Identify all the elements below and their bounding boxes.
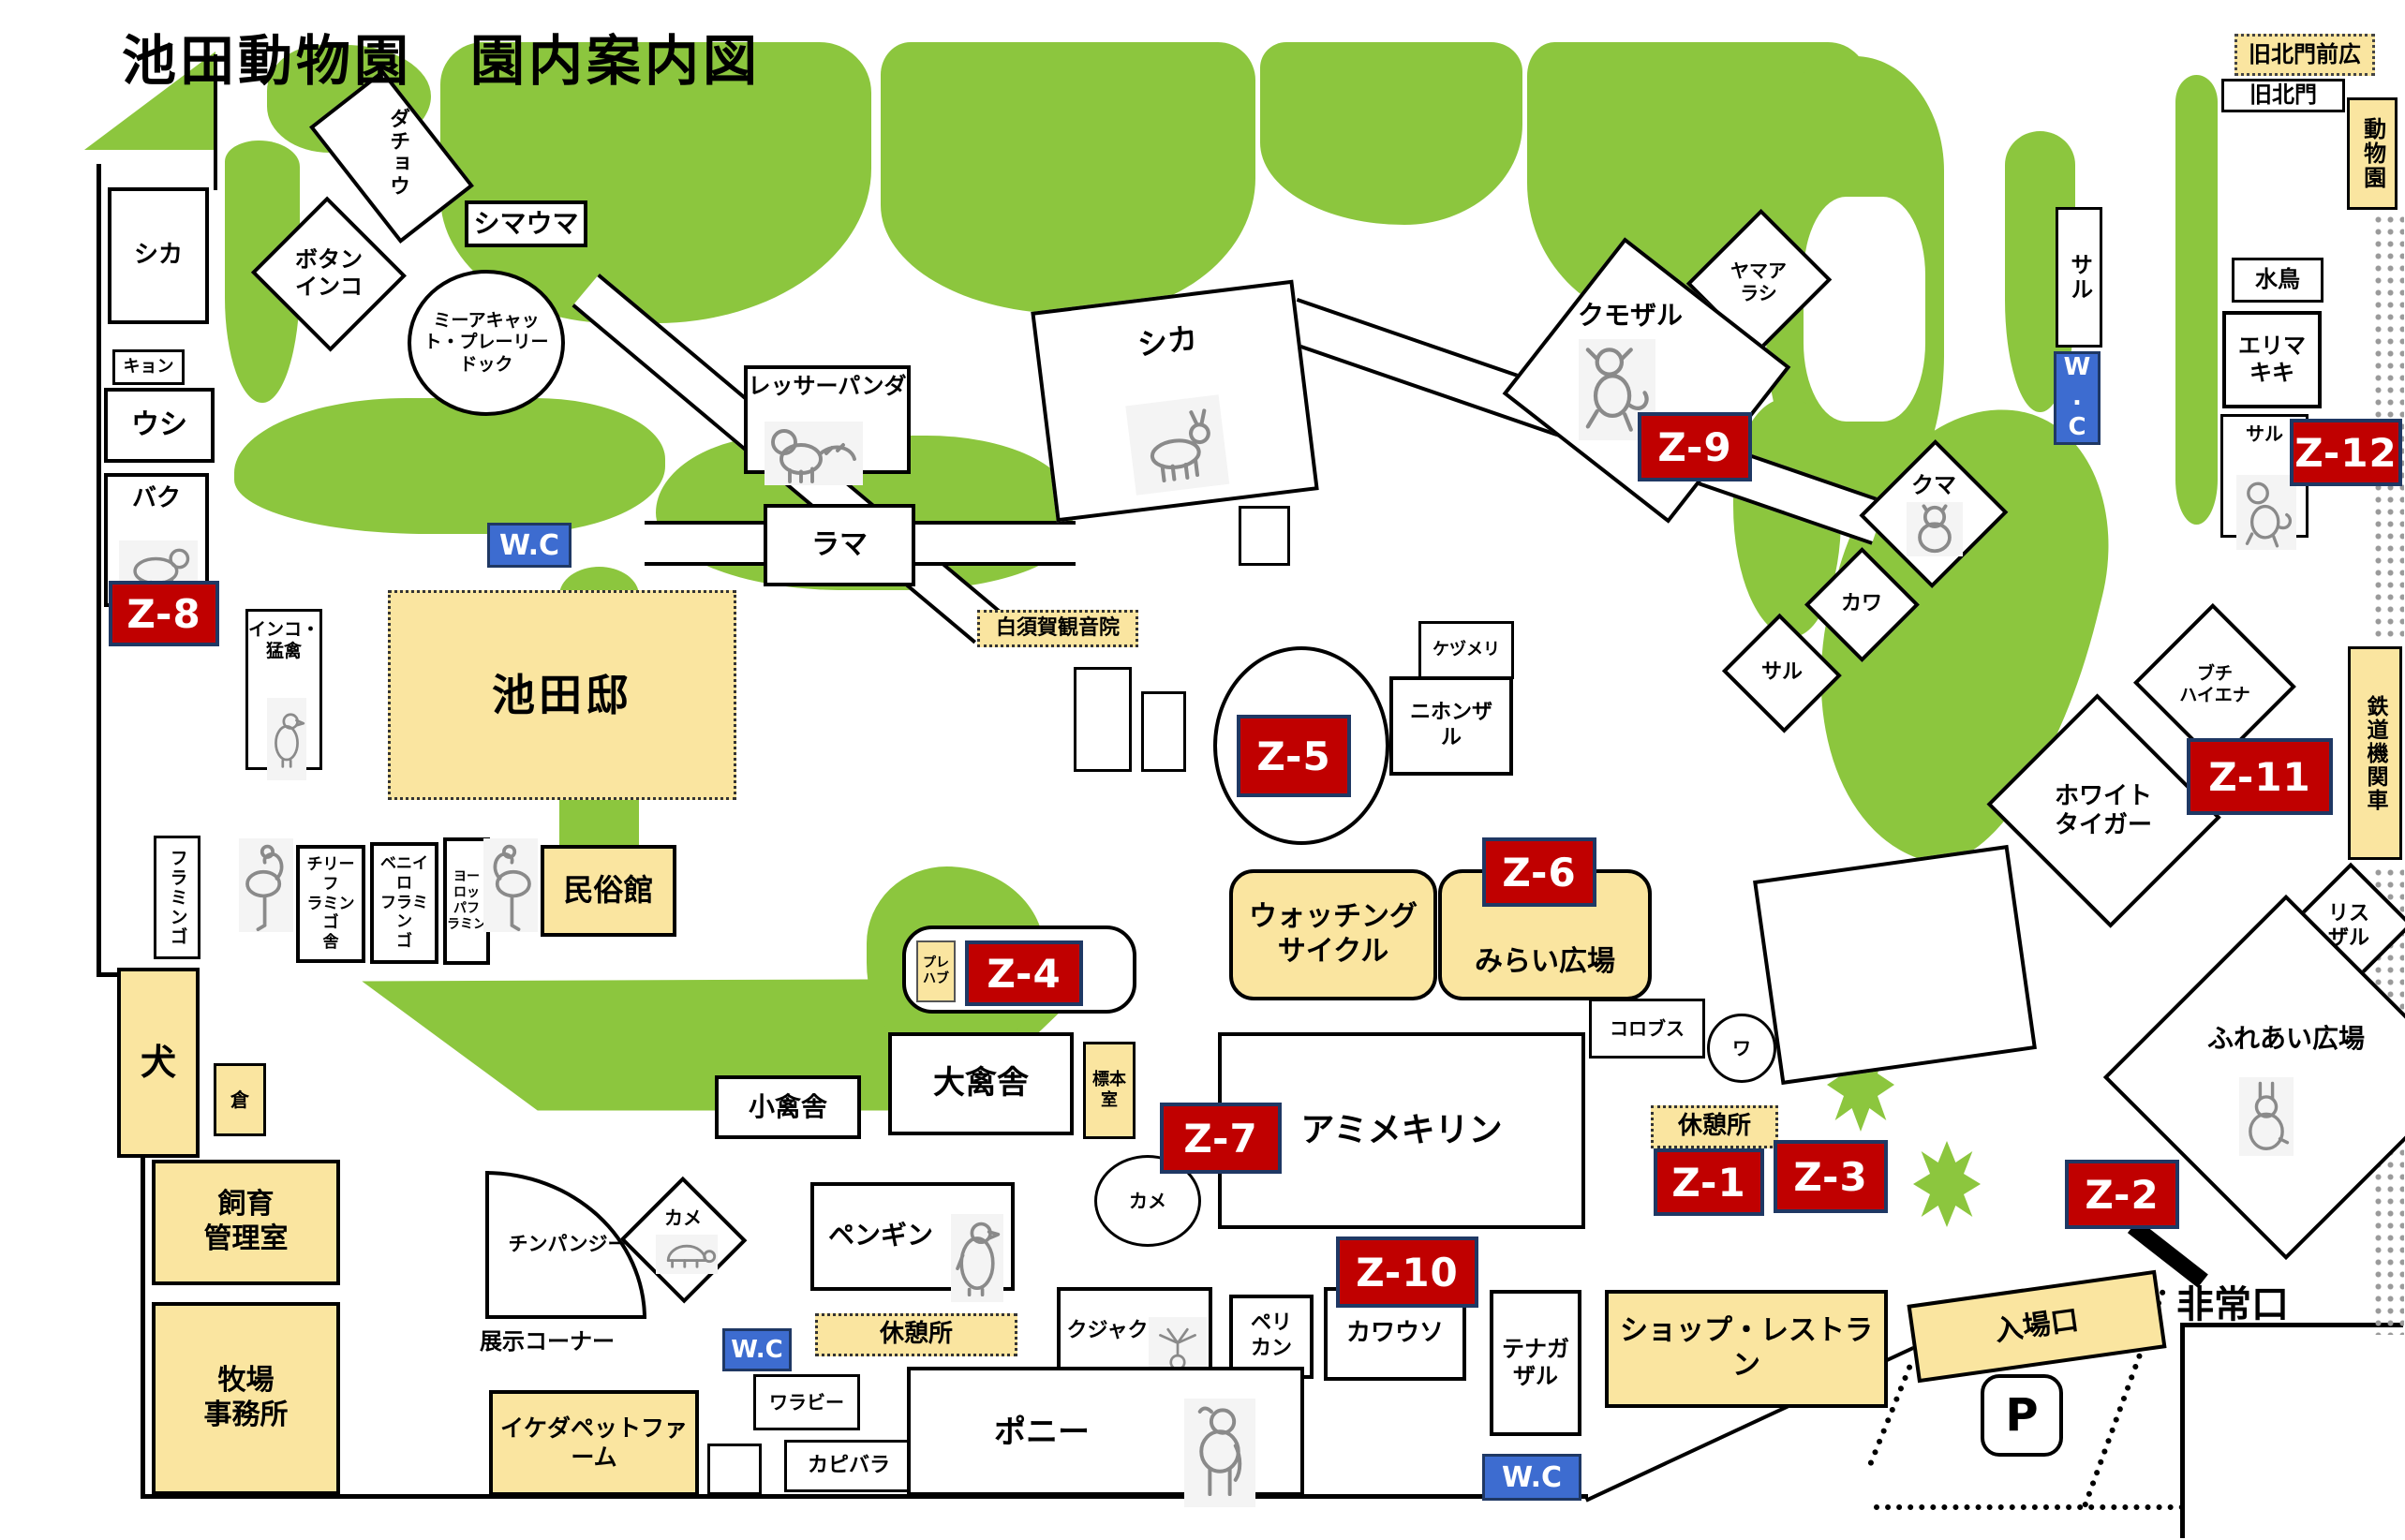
old-north-gate-plaza: 旧北門前広 bbox=[2234, 34, 2375, 76]
enclosure-saru-right: サル bbox=[2056, 207, 2102, 348]
enclosure-nihonzaru: ニホンザ ル bbox=[1389, 676, 1513, 776]
turtle-sketch bbox=[656, 1235, 718, 1274]
zone-marker-z9: Z-9 bbox=[1638, 412, 1752, 481]
wc-box: W.C bbox=[722, 1328, 792, 1371]
zone-marker-z2: Z-2 bbox=[2065, 1160, 2179, 1229]
zone-marker-z7: Z-7 bbox=[1160, 1103, 1282, 1174]
enclosure-kumozaru-label: クモザル bbox=[1551, 295, 1710, 333]
tree-icon bbox=[1913, 1141, 1981, 1227]
zoo-guide-map: 池田動物園 園内案内図 旧北門前広 旧北門 動物園 シカ ダチョウ ボタン イン… bbox=[0, 0, 2405, 1540]
wc-box: W.C bbox=[1482, 1454, 1581, 1501]
boundary-line bbox=[141, 1494, 1588, 1499]
enclosure-baku-label: バク bbox=[108, 484, 205, 514]
enclosure-capybara: カピバラ bbox=[784, 1440, 913, 1492]
zone-marker-z6: Z-6 bbox=[1482, 837, 1596, 907]
deer-sketch bbox=[1123, 376, 1227, 476]
enclosure-saru-mid: サル bbox=[1729, 623, 1835, 722]
tapir-sketch bbox=[119, 522, 198, 578]
enclosure-kame-diamond: カメ bbox=[628, 1186, 738, 1295]
building-minzokukan: 民俗館 bbox=[541, 845, 676, 937]
enclosure-inko-mokin-label: インコ・ 猛禽 bbox=[248, 619, 319, 662]
unlabeled-enclosure bbox=[1753, 845, 2037, 1085]
attraction-watching-cycle: ウォッチング サイクル bbox=[1229, 869, 1437, 1000]
enclosure-tenagazaru: テナガ ザル bbox=[1490, 1290, 1581, 1436]
entrance-gate: 入場口 bbox=[1907, 1270, 2166, 1383]
enclosure-lesser-panda-label: レッサーパンダ bbox=[748, 373, 907, 400]
enclosure-pony-label: ポニー bbox=[939, 1414, 1145, 1452]
flamingo-sketch bbox=[239, 838, 293, 932]
building-petfarm: イケダペットファーム bbox=[489, 1390, 699, 1496]
enclosure-kyon: キョン bbox=[112, 349, 185, 385]
enclosure-chimp-fan: チンパンジー bbox=[485, 1171, 646, 1319]
enclosure-white-tiger-label: ホワイト タイガー bbox=[1997, 716, 2210, 907]
emergency-exit-boundary bbox=[2180, 1323, 2403, 1538]
enclosure-daikinsha: 大禽舎 bbox=[888, 1032, 1074, 1135]
zone-marker-z5: Z-5 bbox=[1237, 715, 1351, 797]
zone-marker-z8: Z-8 bbox=[109, 581, 219, 646]
building-bokujo: 牧場 事務所 bbox=[152, 1302, 340, 1495]
small-building bbox=[707, 1444, 762, 1495]
attraction-tetsudo: 鉄道機関車 bbox=[2348, 646, 2402, 860]
enclosure-wallaby: ワラビー bbox=[753, 1374, 860, 1430]
lawn-area bbox=[234, 398, 665, 534]
building-hyohon: 標本 室 bbox=[1083, 1042, 1136, 1139]
enclosure-mizudori: 水鳥 bbox=[2232, 258, 2323, 303]
enclosure-penguin-label: ペンギン bbox=[820, 1220, 942, 1251]
old-north-gate: 旧北門 bbox=[2221, 79, 2345, 112]
wc-box: W.C bbox=[2054, 351, 2101, 445]
parking-dotted-line bbox=[1874, 1504, 2185, 1510]
bear-sketch bbox=[1907, 502, 1963, 556]
monkey-sketch bbox=[2236, 456, 2296, 531]
enclosure-botan-inko-label: ボタン インコ bbox=[260, 208, 397, 339]
raptor-sketch bbox=[267, 679, 306, 762]
enclosure-white-tiger: ホワイト タイガー bbox=[1997, 716, 2210, 907]
enclosure-wa: ワ bbox=[1707, 1014, 1776, 1083]
area-fureai-hiroba: ふれあい広場 bbox=[2145, 937, 2405, 1218]
enclosure-kujaku: クジャク bbox=[1057, 1287, 1212, 1378]
zone-marker-z10: Z-10 bbox=[1336, 1236, 1478, 1308]
pony-sketch bbox=[1184, 1380, 1255, 1488]
building-shirasuga: 白須賀観音院 bbox=[977, 610, 1138, 647]
small-building bbox=[1074, 667, 1132, 772]
emergency-exit-label: 非常口 bbox=[2176, 1274, 2383, 1328]
enclosure-lesser-panda: レッサーパンダ bbox=[744, 365, 911, 474]
red-panda-sketch bbox=[765, 403, 863, 466]
enclosure-ushi: ウシ bbox=[104, 388, 215, 463]
wc-box: W.C bbox=[487, 523, 572, 568]
boundary-line bbox=[96, 164, 101, 974]
tenji-corner-label: 展示コーナー bbox=[480, 1323, 658, 1355]
enclosure-yamaarashi: ヤマア ラシ bbox=[1698, 217, 1819, 347]
enclosure-saru-mid-label: サル bbox=[1729, 623, 1835, 722]
enclosure-kujaku-label: クジャク bbox=[1062, 1319, 1152, 1344]
enclosure-kezumeri: ケヅメリ bbox=[1418, 621, 1514, 679]
enclosure-chimp-label: チンパンジー bbox=[493, 1233, 643, 1257]
enclosure-shika-topleft: シカ bbox=[108, 187, 209, 324]
zone-marker-z12: Z-12 bbox=[2290, 419, 2402, 486]
enclosure-pony: ポニー bbox=[907, 1367, 1304, 1496]
small-building bbox=[1141, 691, 1186, 772]
enclosure-shokinsha: 小禽舎 bbox=[715, 1075, 861, 1139]
building-prefab: プレ ハブ bbox=[916, 940, 956, 1002]
enclosure-meerkat-prairiedog: ミーアキャッ ト・プレーリー ドック bbox=[408, 270, 565, 416]
enclosure-inko-mokin: インコ・ 猛禽 bbox=[245, 609, 322, 770]
parking-sign: P bbox=[1981, 1374, 2063, 1457]
peacock-sketch bbox=[1149, 1298, 1207, 1370]
lawn-area bbox=[2175, 75, 2218, 525]
lawn-cutout bbox=[1804, 197, 1925, 422]
enclosure-llama: ラマ bbox=[764, 504, 915, 586]
enclosure-botan-inko: ボタン インコ bbox=[260, 208, 397, 339]
enclosure-colobus: コロブス bbox=[1589, 999, 1705, 1059]
penguin-sketch bbox=[951, 1195, 1003, 1283]
enclosure-chile-flamingo: チリーフ ラミンゴ 舎 bbox=[296, 845, 365, 963]
flamingo-sketch bbox=[483, 838, 538, 932]
enclosure-inu: 犬 bbox=[117, 968, 200, 1158]
enclosure-beniiro-flamingo: ベニイロ フラミン ゴ bbox=[370, 842, 438, 964]
rabbit-sketch bbox=[2239, 1077, 2294, 1156]
zone-marker-z4: Z-4 bbox=[965, 940, 1083, 1006]
zone-marker-z3: Z-3 bbox=[1774, 1140, 1888, 1213]
enclosure-erimakiki: エリマ キキ bbox=[2222, 311, 2322, 408]
enclosure-flamingo: フラミンゴ bbox=[154, 836, 200, 959]
zone-marker-z11: Z-11 bbox=[2187, 738, 2333, 815]
building-shop-restaurant: ショップ・レストラン bbox=[1605, 1290, 1888, 1408]
map-title: 池田動物園 園内案内図 bbox=[122, 17, 761, 96]
enclosure-yamaarashi-label: ヤマア ラシ bbox=[1698, 217, 1819, 347]
lawn-area bbox=[1260, 42, 1522, 225]
enclosure-shika-center: シカ bbox=[1031, 280, 1318, 523]
building-ikeda-tei: 池田邸 bbox=[388, 590, 736, 800]
enclosure-shimauma: シマウマ bbox=[465, 200, 587, 247]
building-kura: 倉 bbox=[214, 1063, 266, 1136]
rest-area-1: 休憩所 bbox=[1651, 1105, 1778, 1148]
enclosure-penguin: ペンギン bbox=[810, 1182, 1015, 1291]
rest-area-2: 休憩所 bbox=[815, 1313, 1017, 1356]
zoo-sign: 動物園 bbox=[2347, 97, 2398, 210]
small-enclosure bbox=[1239, 506, 1290, 566]
zone-marker-z1: Z-1 bbox=[1654, 1148, 1764, 1216]
lawn-area bbox=[881, 42, 1255, 314]
building-shiiku: 飼育 管理室 bbox=[152, 1160, 340, 1285]
enclosure-shika-center-label: シカ bbox=[1038, 308, 1298, 376]
